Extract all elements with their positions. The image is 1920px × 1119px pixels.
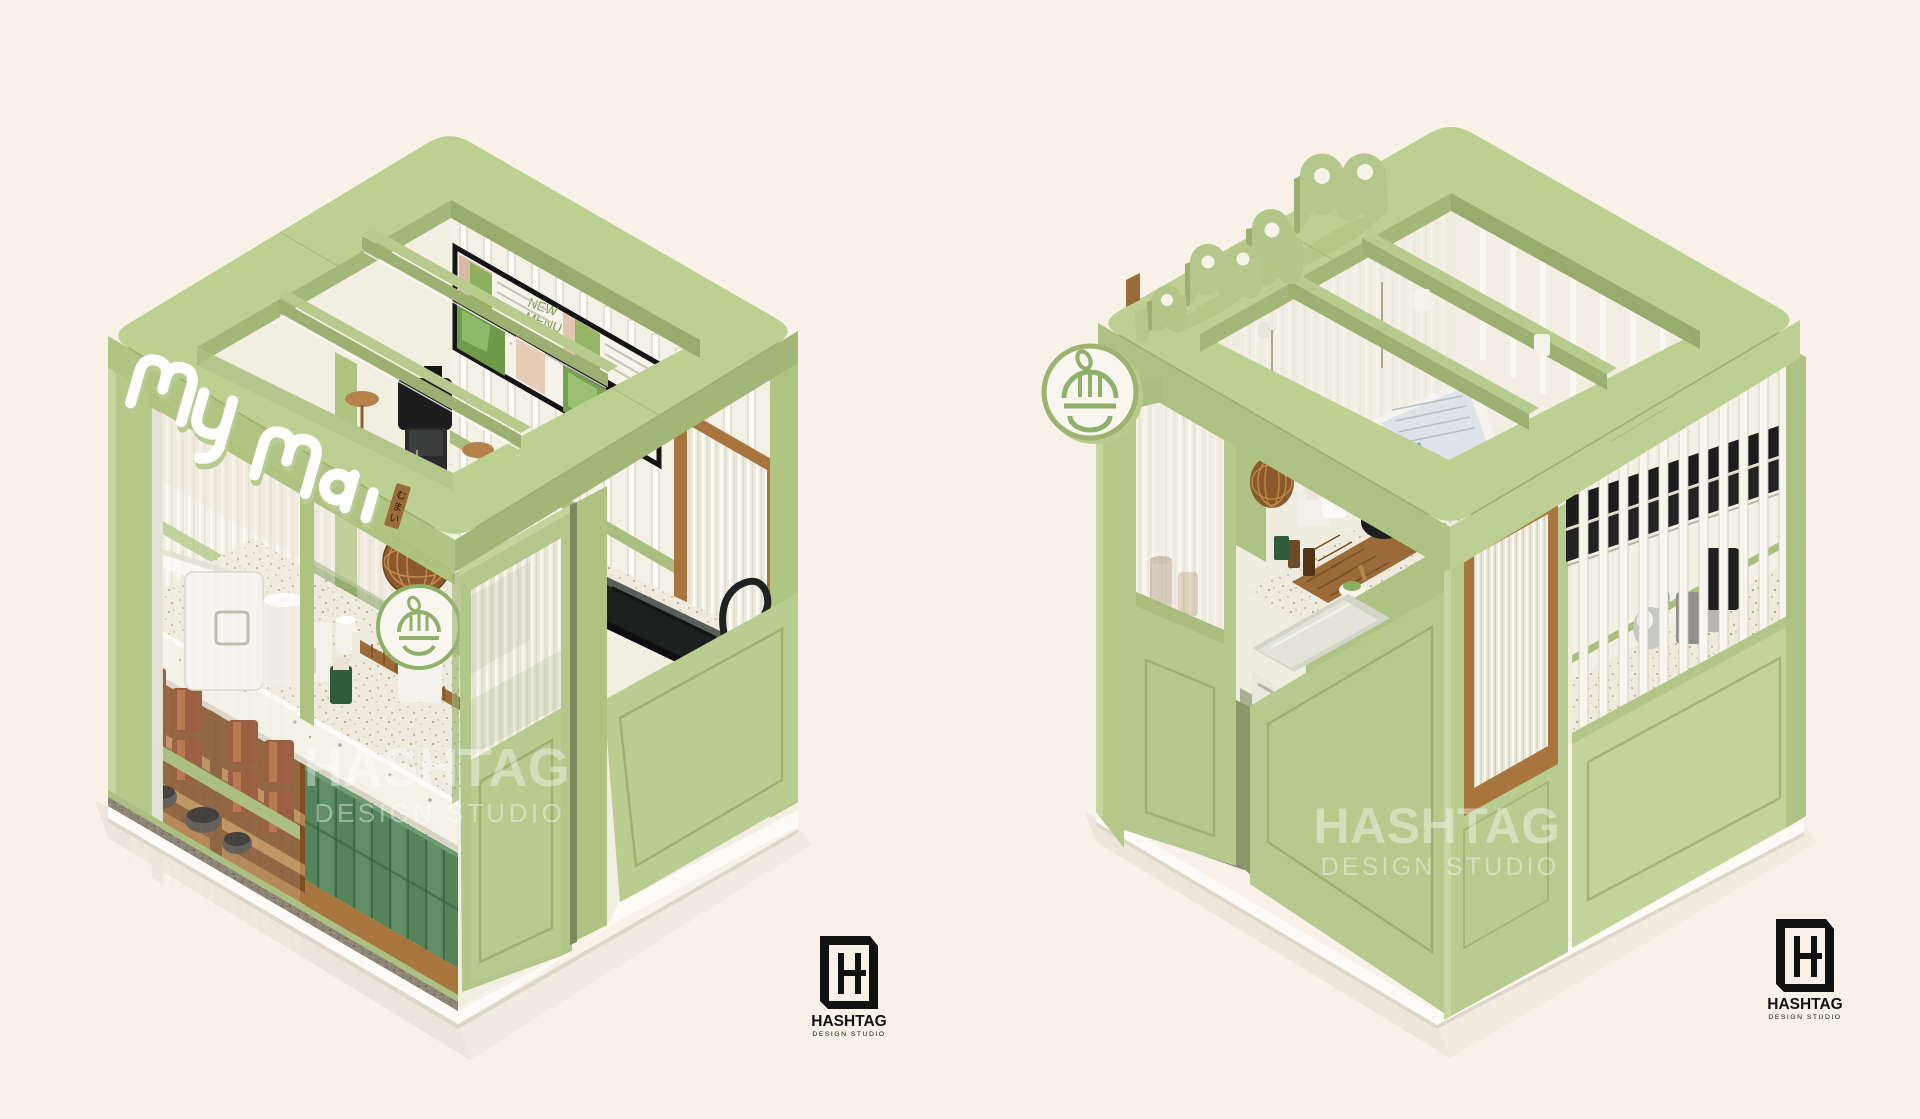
svg-text:HASHTAG: HASHTAG (1767, 996, 1843, 1013)
svg-text:DESIGN STUDIO: DESIGN STUDIO (315, 798, 566, 828)
svg-text:DESIGN STUDIO: DESIGN STUDIO (1321, 853, 1560, 881)
svg-text:DESIGN STUDIO: DESIGN STUDIO (1768, 1014, 1841, 1021)
svg-text:DESIGN STUDIO: DESIGN STUDIO (812, 1031, 885, 1038)
svg-text:HASHTAG: HASHTAG (811, 1013, 887, 1030)
svg-text:HASHTAG: HASHTAG (1313, 798, 1560, 854)
svg-text:HASHTAG: HASHTAG (304, 738, 571, 798)
